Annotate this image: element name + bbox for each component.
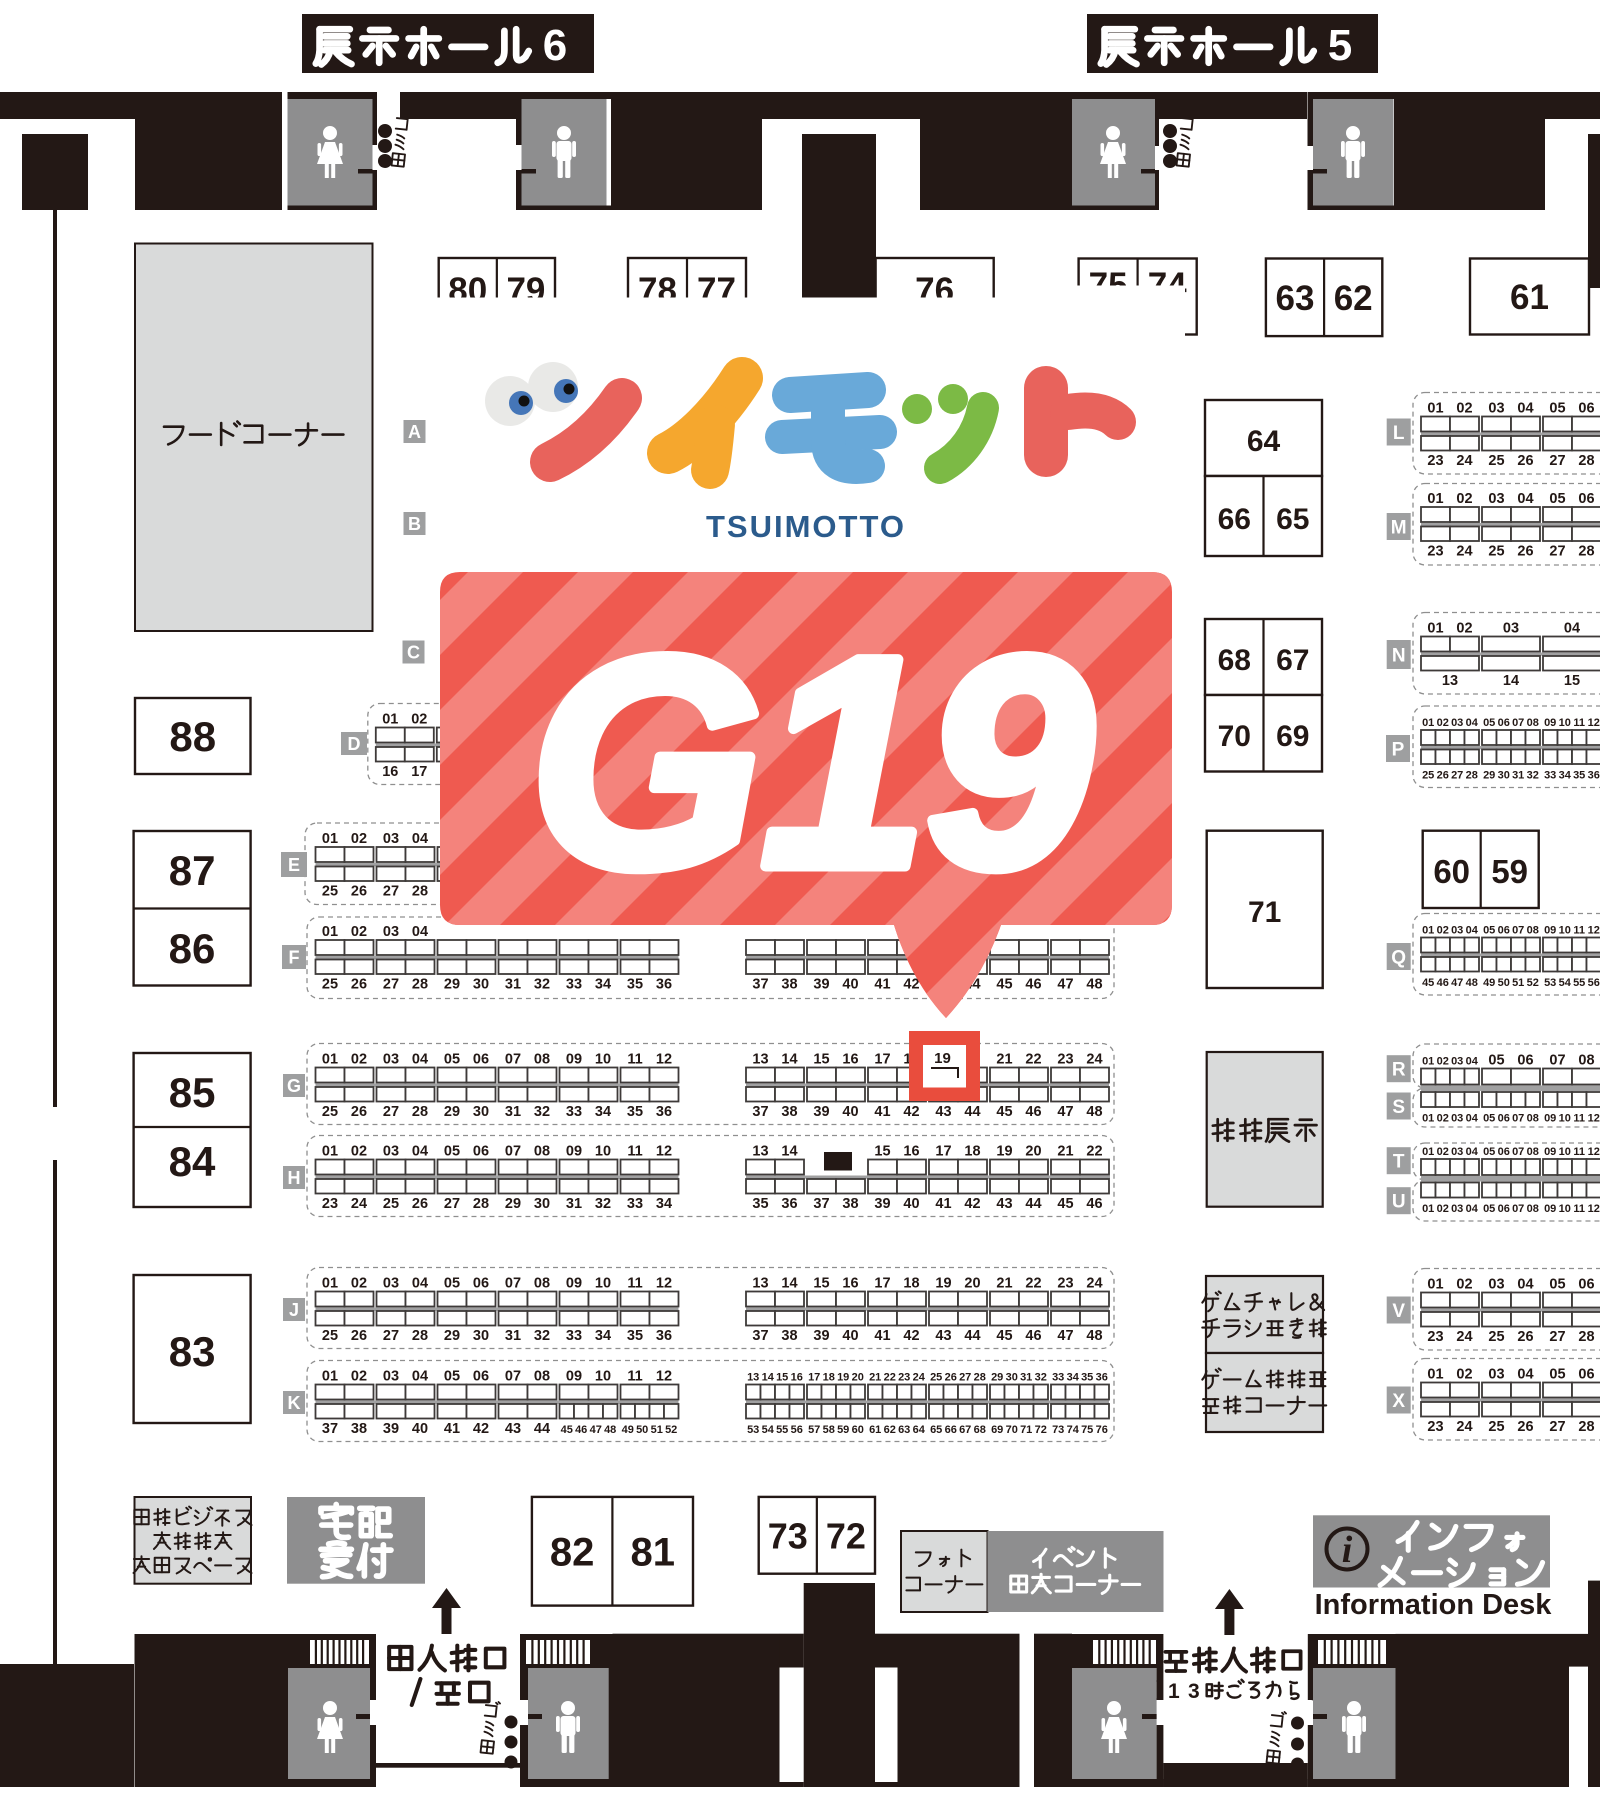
svg-text:35: 35 (627, 977, 643, 993)
svg-text:06: 06 (1498, 925, 1510, 937)
svg-text:03: 03 (1451, 1056, 1463, 1068)
svg-text:28: 28 (1578, 544, 1594, 560)
svg-text:24: 24 (1086, 1052, 1102, 1068)
svg-text:47: 47 (1451, 977, 1463, 989)
svg-text:01: 01 (322, 1144, 338, 1160)
svg-text:05: 05 (444, 1276, 460, 1292)
svg-text:08: 08 (1527, 925, 1539, 937)
svg-text:03: 03 (1451, 1146, 1463, 1158)
svg-text:39: 39 (813, 977, 829, 993)
svg-text:52: 52 (1527, 977, 1539, 989)
svg-text:12: 12 (656, 1144, 672, 1160)
svg-text:21: 21 (996, 1052, 1012, 1068)
svg-text:07: 07 (505, 1276, 521, 1292)
svg-text:21: 21 (869, 1372, 881, 1384)
svg-text:19: 19 (837, 1372, 849, 1384)
svg-text:10: 10 (595, 1276, 611, 1292)
svg-text:19: 19 (934, 1050, 951, 1067)
svg-text:38: 38 (351, 1421, 367, 1437)
svg-text:15: 15 (776, 1372, 788, 1384)
svg-text:07: 07 (1512, 925, 1524, 937)
svg-text:31: 31 (566, 1196, 582, 1212)
svg-text:45: 45 (1422, 977, 1434, 989)
svg-text:09: 09 (1544, 925, 1556, 937)
svg-text:11: 11 (627, 1276, 642, 1292)
svg-text:07: 07 (505, 1052, 521, 1068)
svg-text:28: 28 (974, 1372, 986, 1384)
svg-text:26: 26 (412, 1196, 428, 1212)
svg-text:07: 07 (1549, 1053, 1565, 1069)
svg-text:6: 6 (543, 21, 567, 70)
svg-text:20: 20 (1025, 1144, 1041, 1160)
svg-text:V: V (1392, 1301, 1405, 1322)
svg-text:04: 04 (1466, 717, 1479, 729)
svg-text:24: 24 (1456, 544, 1472, 560)
svg-text:04: 04 (412, 831, 428, 847)
svg-text:01: 01 (1422, 1056, 1434, 1068)
svg-text:28: 28 (412, 884, 428, 900)
svg-text:10: 10 (1559, 1146, 1571, 1158)
svg-text:13: 13 (747, 1372, 759, 1384)
svg-text:41: 41 (935, 1196, 951, 1212)
svg-text:56: 56 (791, 1424, 803, 1436)
svg-text:36: 36 (656, 1104, 672, 1120)
svg-text:63: 63 (1276, 279, 1315, 318)
svg-text:26: 26 (1437, 770, 1449, 782)
svg-text:37: 37 (752, 1328, 768, 1344)
svg-text:02: 02 (1456, 1277, 1472, 1293)
svg-text:35: 35 (627, 1104, 643, 1120)
svg-text:52: 52 (665, 1424, 677, 1436)
svg-text:42: 42 (903, 1104, 919, 1120)
svg-text:38: 38 (781, 1328, 797, 1344)
svg-text:26: 26 (351, 1328, 367, 1344)
svg-text:04: 04 (412, 1052, 428, 1068)
svg-text:73: 73 (1052, 1424, 1064, 1436)
svg-text:72: 72 (826, 1515, 866, 1556)
svg-text:86: 86 (169, 925, 216, 972)
svg-text:35: 35 (1573, 770, 1585, 782)
svg-text:P: P (1392, 739, 1405, 760)
svg-text:01: 01 (1422, 925, 1434, 937)
svg-text:21: 21 (996, 1276, 1012, 1292)
svg-text:03: 03 (383, 1052, 399, 1068)
svg-text:51: 51 (1512, 977, 1524, 989)
svg-text:23: 23 (1427, 1419, 1443, 1435)
svg-text:Information Desk: Information Desk (1315, 1589, 1553, 1621)
svg-text:02: 02 (1437, 1203, 1449, 1215)
svg-text:07: 07 (1512, 1203, 1524, 1215)
svg-text:41: 41 (874, 1328, 890, 1344)
svg-text:02: 02 (1437, 1113, 1449, 1125)
svg-text:04: 04 (412, 1144, 428, 1160)
svg-text:25: 25 (322, 884, 338, 900)
svg-text:05: 05 (1483, 1203, 1495, 1215)
svg-text:12: 12 (1588, 1203, 1600, 1215)
svg-text:74: 74 (1067, 1424, 1080, 1436)
svg-text:24: 24 (1456, 1329, 1472, 1345)
svg-text:04: 04 (412, 1276, 428, 1292)
svg-text:70: 70 (1218, 720, 1251, 753)
svg-text:42: 42 (473, 1421, 489, 1437)
svg-text:12: 12 (656, 1276, 672, 1292)
svg-text:17: 17 (874, 1052, 890, 1068)
svg-text:06: 06 (1498, 1146, 1510, 1158)
svg-text:01: 01 (382, 712, 398, 728)
svg-text:32: 32 (595, 1196, 611, 1212)
svg-text:06: 06 (1498, 1203, 1510, 1215)
svg-text:09: 09 (1544, 1113, 1556, 1125)
svg-text:12: 12 (1588, 1113, 1600, 1125)
svg-text:27: 27 (1549, 544, 1565, 560)
svg-text:G19: G19 (529, 594, 1094, 930)
svg-text:36: 36 (1096, 1372, 1108, 1384)
svg-text:25: 25 (1488, 1419, 1504, 1435)
svg-text:F: F (289, 947, 300, 967)
svg-text:05: 05 (1483, 1146, 1495, 1158)
svg-text:32: 32 (534, 977, 550, 993)
svg-text:45: 45 (996, 977, 1012, 993)
svg-text:73: 73 (768, 1515, 808, 1556)
svg-text:33: 33 (566, 1328, 582, 1344)
svg-text:41: 41 (444, 1421, 460, 1437)
svg-text:25: 25 (1488, 1329, 1504, 1345)
svg-text:E: E (288, 855, 300, 875)
svg-text:72: 72 (1035, 1424, 1047, 1436)
svg-text:09: 09 (1544, 1203, 1556, 1215)
svg-text:32: 32 (534, 1104, 550, 1120)
svg-text:26: 26 (1517, 544, 1533, 560)
svg-text:05: 05 (1549, 491, 1565, 507)
svg-text:27: 27 (1549, 453, 1565, 469)
svg-text:38: 38 (781, 1104, 797, 1120)
svg-text:02: 02 (1437, 717, 1449, 729)
svg-text:14: 14 (762, 1372, 775, 1384)
svg-text:29: 29 (505, 1196, 521, 1212)
svg-text:03: 03 (1451, 925, 1463, 937)
svg-text:5: 5 (1328, 21, 1352, 70)
svg-text:09: 09 (1544, 717, 1556, 729)
svg-text:48: 48 (604, 1424, 616, 1436)
svg-text:06: 06 (473, 1052, 489, 1068)
svg-text:03: 03 (1451, 1203, 1463, 1215)
svg-text:30: 30 (534, 1196, 550, 1212)
svg-text:R: R (1392, 1060, 1406, 1081)
svg-text:23: 23 (1057, 1276, 1073, 1292)
svg-text:49: 49 (1483, 977, 1495, 989)
svg-text:08: 08 (534, 1369, 550, 1385)
svg-text:28: 28 (412, 977, 428, 993)
svg-text:12: 12 (1588, 1146, 1600, 1158)
svg-text:67: 67 (1276, 644, 1309, 677)
svg-text:02: 02 (351, 1052, 367, 1068)
svg-text:06: 06 (1578, 1277, 1594, 1293)
svg-text:16: 16 (791, 1372, 803, 1384)
svg-text:01: 01 (1427, 491, 1443, 507)
svg-text:02: 02 (351, 1144, 367, 1160)
svg-text:34: 34 (595, 1328, 611, 1344)
svg-text:31: 31 (505, 1328, 521, 1344)
svg-text:25: 25 (322, 1328, 338, 1344)
svg-text:33: 33 (627, 1196, 643, 1212)
svg-text:24: 24 (351, 1196, 367, 1212)
svg-text:35: 35 (1081, 1372, 1093, 1384)
svg-text:48: 48 (1086, 1328, 1102, 1344)
svg-text:28: 28 (1578, 1329, 1594, 1345)
svg-text:26: 26 (945, 1372, 957, 1384)
svg-text:41: 41 (874, 977, 890, 993)
svg-text:64: 64 (913, 1424, 926, 1436)
svg-text:33: 33 (1052, 1372, 1064, 1384)
svg-text:23: 23 (1427, 544, 1443, 560)
svg-text:13: 13 (752, 1276, 768, 1292)
svg-text:08: 08 (1527, 1203, 1539, 1215)
svg-text:66: 66 (1218, 503, 1251, 536)
svg-text:40: 40 (842, 1328, 858, 1344)
svg-text:40: 40 (903, 1196, 919, 1212)
svg-text:27: 27 (959, 1372, 971, 1384)
svg-text:TSUIMOTTO: TSUIMOTTO (706, 509, 906, 544)
svg-text:25: 25 (1488, 453, 1504, 469)
svg-text:06: 06 (1578, 401, 1594, 417)
svg-text:07: 07 (1512, 1113, 1524, 1125)
svg-text:33: 33 (566, 1104, 582, 1120)
svg-text:02: 02 (1437, 1146, 1449, 1158)
svg-text:35: 35 (627, 1328, 643, 1344)
svg-text:46: 46 (1025, 977, 1041, 993)
svg-text:38: 38 (781, 977, 797, 993)
svg-text:37: 37 (813, 1196, 829, 1212)
svg-text:42: 42 (964, 1196, 980, 1212)
svg-text:17: 17 (808, 1372, 820, 1384)
svg-text:L: L (1393, 423, 1405, 444)
svg-text:03: 03 (383, 1369, 399, 1385)
svg-text:02: 02 (1437, 925, 1449, 937)
svg-text:11: 11 (1573, 1203, 1585, 1215)
svg-text:50: 50 (636, 1424, 648, 1436)
svg-text:04: 04 (1466, 1146, 1479, 1158)
svg-text:32: 32 (1527, 770, 1539, 782)
svg-text:27: 27 (1451, 770, 1463, 782)
svg-text:3: 3 (1188, 1680, 1200, 1703)
svg-text:01: 01 (1427, 401, 1443, 417)
svg-text:08: 08 (1527, 717, 1539, 729)
svg-text:30: 30 (473, 1104, 489, 1120)
svg-text:05: 05 (1483, 717, 1495, 729)
svg-text:A: A (408, 422, 421, 442)
svg-text:37: 37 (752, 977, 768, 993)
svg-text:06: 06 (1578, 491, 1594, 507)
svg-text:10: 10 (595, 1052, 611, 1068)
svg-text:45: 45 (996, 1328, 1012, 1344)
svg-text:47: 47 (1057, 1104, 1073, 1120)
svg-text:40: 40 (842, 977, 858, 993)
svg-text:04: 04 (1466, 1203, 1479, 1215)
svg-text:55: 55 (776, 1424, 788, 1436)
svg-text:30: 30 (1498, 770, 1510, 782)
svg-text:43: 43 (935, 1328, 951, 1344)
svg-text:56: 56 (1588, 977, 1600, 989)
svg-text:28: 28 (1466, 770, 1478, 782)
svg-text:34: 34 (595, 1104, 611, 1120)
svg-text:44: 44 (964, 1104, 980, 1120)
svg-text:34: 34 (656, 1196, 672, 1212)
svg-text:53: 53 (747, 1424, 759, 1436)
svg-text:09: 09 (566, 1052, 582, 1068)
svg-text:09: 09 (566, 1276, 582, 1292)
svg-text:11: 11 (627, 1052, 642, 1068)
svg-text:20: 20 (964, 1276, 980, 1292)
svg-text:31: 31 (505, 977, 521, 993)
svg-text:82: 82 (550, 1531, 595, 1575)
svg-text:24: 24 (1086, 1276, 1102, 1292)
svg-text:03: 03 (1451, 1113, 1463, 1125)
svg-text:30: 30 (473, 1328, 489, 1344)
svg-text:25: 25 (930, 1372, 942, 1384)
svg-text:28: 28 (1578, 1419, 1594, 1435)
svg-text:26: 26 (351, 1104, 367, 1120)
svg-text:C: C (407, 642, 420, 662)
svg-text:35: 35 (752, 1196, 768, 1212)
svg-text:06: 06 (1517, 1053, 1533, 1069)
svg-text:45: 45 (561, 1424, 573, 1436)
svg-text:43: 43 (935, 1104, 951, 1120)
svg-text:48: 48 (1466, 977, 1478, 989)
svg-text:09: 09 (566, 1369, 582, 1385)
svg-text:45: 45 (1057, 1196, 1073, 1212)
svg-text:22: 22 (1025, 1276, 1041, 1292)
svg-text:34: 34 (595, 977, 611, 993)
svg-text:39: 39 (813, 1104, 829, 1120)
svg-text:04: 04 (1517, 401, 1533, 417)
svg-text:69: 69 (1276, 720, 1309, 753)
svg-text:16: 16 (842, 1276, 858, 1292)
svg-text:85: 85 (169, 1069, 216, 1116)
svg-text:22: 22 (1086, 1144, 1102, 1160)
svg-text:14: 14 (781, 1276, 797, 1292)
svg-text:40: 40 (842, 1104, 858, 1120)
svg-text:42: 42 (903, 977, 919, 993)
svg-text:14: 14 (781, 1144, 797, 1160)
svg-text:18: 18 (903, 1276, 919, 1292)
svg-text:10: 10 (595, 1144, 611, 1160)
svg-text:27: 27 (383, 1328, 399, 1344)
svg-text:39: 39 (813, 1328, 829, 1344)
svg-text:28: 28 (1578, 453, 1594, 469)
svg-text:06: 06 (473, 1369, 489, 1385)
svg-text:50: 50 (1498, 977, 1510, 989)
svg-text:X: X (1392, 1391, 1405, 1412)
svg-text:05: 05 (1549, 401, 1565, 417)
svg-text:47: 47 (1057, 977, 1073, 993)
svg-text:01: 01 (322, 1369, 338, 1385)
svg-text:i: i (1342, 1529, 1353, 1571)
svg-text:36: 36 (656, 977, 672, 993)
svg-text:60: 60 (1433, 853, 1470, 890)
svg-text:40: 40 (412, 1421, 428, 1437)
svg-text:15: 15 (813, 1276, 829, 1292)
svg-text:28: 28 (412, 1104, 428, 1120)
svg-text:04: 04 (1517, 491, 1533, 507)
svg-text:01: 01 (1422, 1203, 1434, 1215)
svg-text:11: 11 (627, 1369, 642, 1385)
svg-text:28: 28 (412, 1328, 428, 1344)
svg-text:04: 04 (1466, 1056, 1479, 1068)
svg-text:87: 87 (169, 847, 216, 894)
svg-text:05: 05 (1549, 1277, 1565, 1293)
svg-text:63: 63 (898, 1424, 910, 1436)
svg-text:70: 70 (1006, 1424, 1018, 1436)
svg-text:58: 58 (823, 1424, 835, 1436)
svg-text:32: 32 (1035, 1372, 1047, 1384)
svg-text:13: 13 (752, 1052, 768, 1068)
svg-text:J: J (289, 1300, 299, 1320)
svg-text:44: 44 (1025, 1196, 1041, 1212)
svg-text:27: 27 (383, 884, 399, 900)
svg-text:54: 54 (1559, 977, 1572, 989)
svg-text:36: 36 (781, 1196, 797, 1212)
svg-text:29: 29 (444, 1328, 460, 1344)
svg-text:18: 18 (823, 1372, 835, 1384)
svg-text:27: 27 (383, 1104, 399, 1120)
svg-text:30: 30 (473, 977, 489, 993)
svg-text:04: 04 (1564, 621, 1580, 637)
svg-text:02: 02 (1437, 1056, 1449, 1068)
svg-text:57: 57 (808, 1424, 820, 1436)
svg-text:03: 03 (1488, 1277, 1504, 1293)
svg-text:Q: Q (1391, 947, 1406, 968)
svg-text:33: 33 (1544, 770, 1556, 782)
svg-text:26: 26 (351, 884, 367, 900)
svg-text:34: 34 (1559, 770, 1572, 782)
svg-text:09: 09 (566, 1144, 582, 1160)
svg-text:17: 17 (411, 764, 427, 780)
svg-text:67: 67 (959, 1424, 971, 1436)
svg-text:11: 11 (1573, 925, 1585, 937)
svg-text:10: 10 (1559, 1113, 1571, 1125)
svg-text:U: U (1392, 1192, 1406, 1213)
svg-text:46: 46 (1025, 1104, 1041, 1120)
svg-text:23: 23 (322, 1196, 338, 1212)
svg-text:06: 06 (473, 1276, 489, 1292)
svg-text:10: 10 (1559, 717, 1571, 729)
svg-text:05: 05 (1483, 1113, 1495, 1125)
svg-text:13: 13 (1442, 673, 1458, 689)
svg-text:08: 08 (534, 1144, 550, 1160)
svg-text:01: 01 (1427, 1277, 1443, 1293)
svg-text:43: 43 (505, 1421, 521, 1437)
svg-text:01: 01 (1422, 1146, 1434, 1158)
svg-text:31: 31 (1020, 1372, 1032, 1384)
svg-text:10: 10 (1559, 925, 1571, 937)
svg-text:06: 06 (1498, 717, 1510, 729)
svg-text:27: 27 (1549, 1419, 1565, 1435)
svg-text:84: 84 (169, 1138, 216, 1185)
svg-text:25: 25 (322, 977, 338, 993)
svg-text:15: 15 (874, 1144, 890, 1160)
svg-text:T: T (1393, 1152, 1405, 1173)
svg-text:62: 62 (884, 1424, 896, 1436)
svg-text:76: 76 (1096, 1424, 1108, 1436)
svg-text:38: 38 (842, 1196, 858, 1212)
svg-text:62: 62 (1334, 279, 1373, 318)
svg-text:02: 02 (351, 924, 367, 940)
svg-text:68: 68 (1218, 644, 1251, 677)
svg-text:01: 01 (322, 831, 338, 847)
svg-text:29: 29 (1483, 770, 1495, 782)
svg-text:24: 24 (1456, 1419, 1472, 1435)
svg-text:02: 02 (1456, 1367, 1472, 1383)
